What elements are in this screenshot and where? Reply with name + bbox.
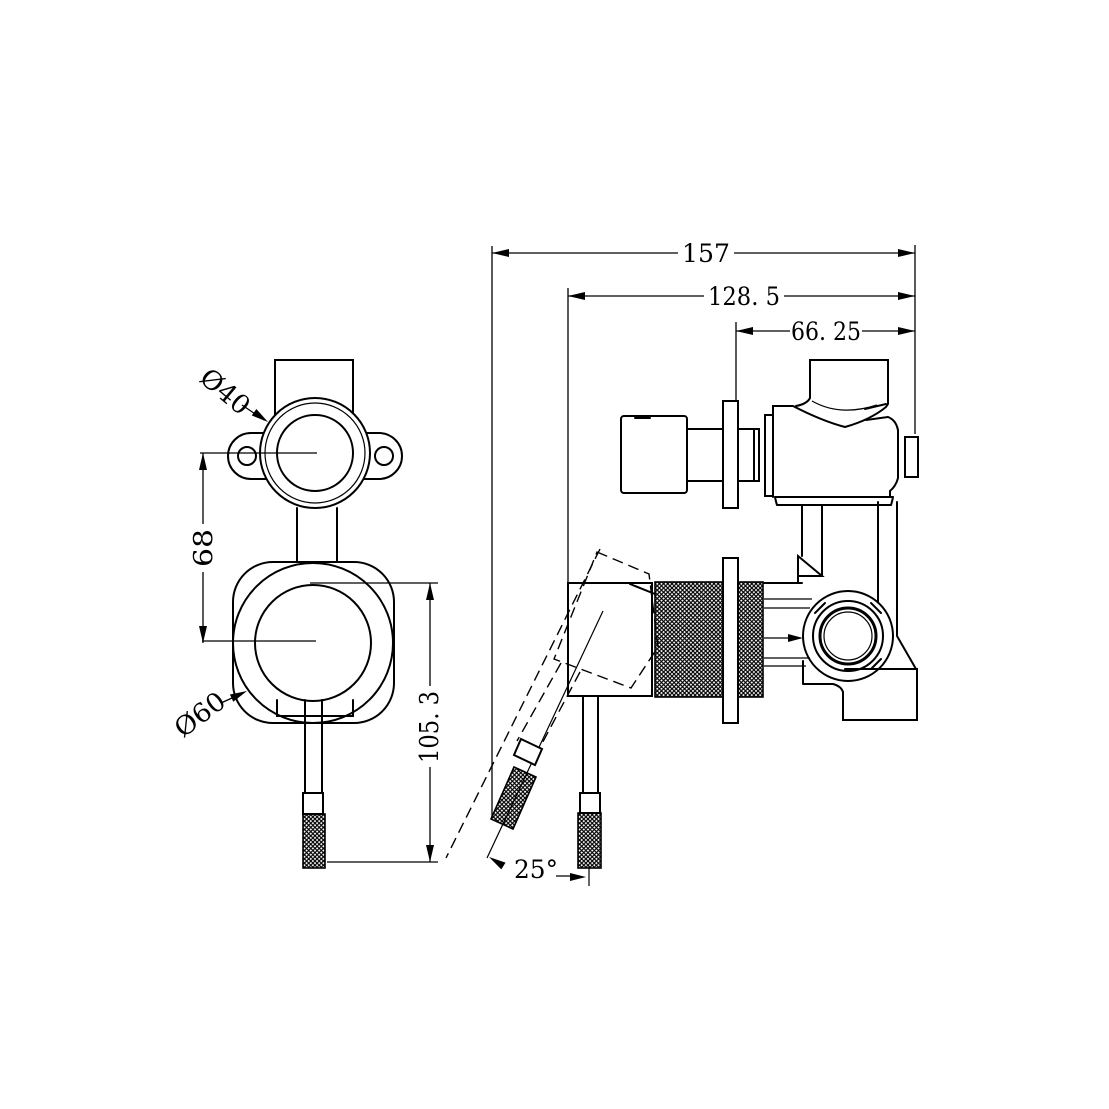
side-chamfer-gusset — [798, 556, 822, 576]
side-connector-lines — [764, 599, 812, 666]
raised-lever-ferrule — [514, 739, 542, 765]
dim-top-port-diameter: Ø40 — [194, 363, 271, 426]
raised-construction-dashed-line — [446, 549, 600, 858]
side-lever-ferrule — [580, 793, 600, 813]
dim-25deg-label: 25° — [514, 855, 558, 884]
side-main-escutcheon — [723, 558, 738, 723]
side-lever-knurl-grip — [578, 813, 601, 868]
raised-lever-knurl-grip — [491, 767, 536, 829]
front-lever-ferrule — [303, 793, 323, 814]
side-boss-facets — [815, 603, 881, 669]
front-view — [200, 360, 402, 868]
side-diverter-stem — [687, 429, 723, 481]
dim-rear-depth: 66. 25 — [736, 317, 915, 346]
dim-68-label: 68 — [189, 529, 219, 567]
dim-128-5-label: 128. 5 — [708, 282, 780, 311]
side-knurled-sleeve — [655, 582, 763, 697]
technical-drawing-page: 157 128. 5 66. 25 68 105. 3 — [0, 0, 1109, 1109]
front-neck — [297, 508, 337, 566]
arrowhead-128-5-right — [898, 292, 915, 300]
side-valve-body-outline — [773, 360, 888, 497]
arrowhead-25deg-vertex — [487, 854, 506, 870]
side-boss-outer-circle — [803, 591, 893, 681]
side-top-escutcheon — [723, 401, 738, 508]
dim-157-label: 157 — [682, 239, 730, 268]
arrowhead-105-3-bottom — [426, 845, 434, 862]
side-back-column — [878, 502, 916, 669]
dim-d60-label: Ø60 — [169, 686, 232, 744]
technical-drawing: 157 128. 5 66. 25 68 105. 3 — [0, 0, 1109, 1109]
arrowhead-68-top — [199, 453, 207, 470]
side-body-right-face — [888, 417, 898, 497]
dim-lever-angle: 25° — [487, 854, 586, 884]
arrowhead-105-3-top — [426, 583, 434, 600]
arrowhead-25deg-right — [570, 873, 586, 881]
side-body-bottom-edges — [775, 497, 893, 505]
boss-centerline-arrowhead — [788, 634, 803, 642]
side-diverter-collar — [738, 429, 759, 481]
side-lever-stem — [583, 697, 598, 793]
dim-port-spacing: 68 — [189, 453, 219, 643]
dim-105-3-label: 105. 3 — [415, 691, 445, 763]
side-boss-thread-circle — [820, 608, 876, 664]
side-step-lines — [764, 576, 802, 583]
side-rear-port — [905, 437, 918, 477]
side-diverter-knob — [621, 416, 687, 493]
side-boss-bore-circle — [824, 612, 872, 660]
dim-handle-diameter: Ø60 — [169, 686, 249, 744]
arrowhead-157-left — [492, 249, 509, 257]
arrowhead-157-right — [898, 249, 915, 257]
side-body-front-face — [765, 415, 773, 496]
dim-d40-label: Ø40 — [194, 363, 256, 422]
side-view — [446, 360, 918, 886]
dim-66-25-label: 66. 25 — [791, 317, 861, 346]
front-rosette-outer-circle — [233, 563, 393, 723]
side-base-bracket — [803, 661, 917, 720]
front-lever-knurl-grip — [303, 814, 325, 868]
dim-handle-length: 105. 3 — [415, 583, 445, 862]
side-handle-block — [568, 583, 652, 696]
arrowhead-128-5-left — [568, 292, 585, 300]
dim-overall-depth: 157 — [492, 239, 915, 268]
arrowhead-66-25-left — [736, 327, 753, 335]
dim-body-depth: 128. 5 — [568, 282, 915, 311]
arrowhead-66-25-right — [898, 327, 915, 335]
arrowhead-d40 — [252, 409, 271, 425]
